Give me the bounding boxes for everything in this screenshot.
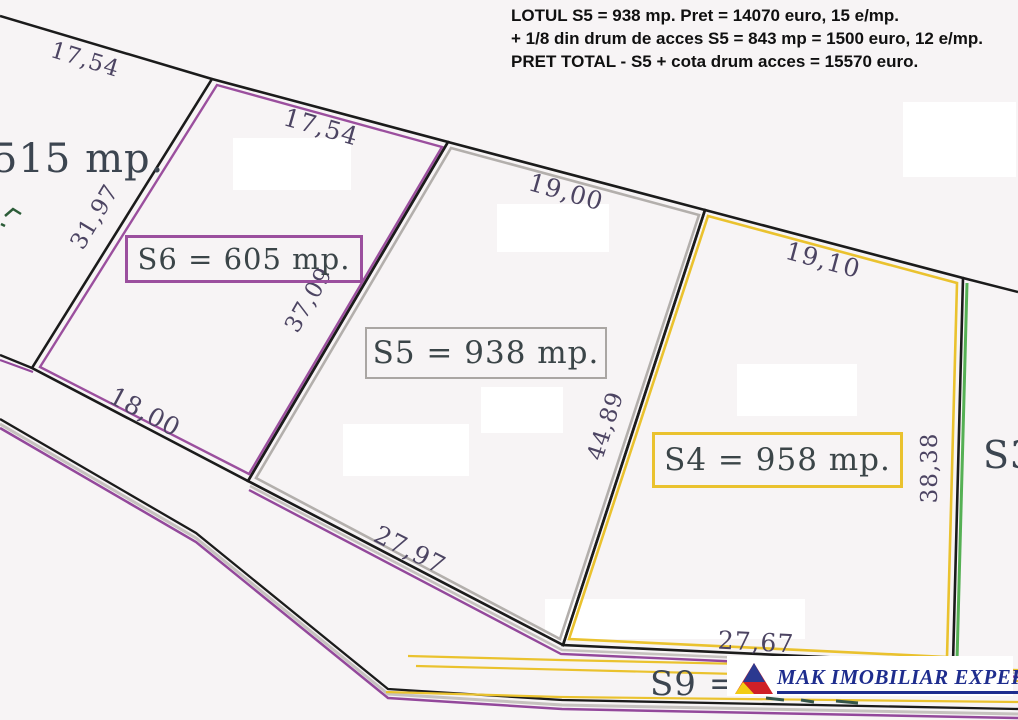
- agency-triangle-icon: [733, 662, 775, 695]
- road-near-gray: [250, 486, 1018, 673]
- margin-tick: [1, 209, 21, 226]
- plot-s4-label-box: S4 = 958 mp.: [652, 432, 903, 488]
- plot-s4-label: S4 = 958 mp.: [664, 442, 891, 478]
- plot-s5-label: S5 = 938 mp.: [373, 335, 600, 371]
- plot-s6-label: S6 = 605 mp.: [138, 242, 351, 276]
- agency-name: MAK IMOBILIAR EXPERT: [777, 665, 1018, 694]
- boundary-top-right-line: [963, 278, 1018, 292]
- annotation-line-1: LOTUL S5 = 938 mp. Pret = 14070 euro, 15…: [511, 4, 983, 27]
- plot-s5-outline: [248, 142, 705, 645]
- neighbor-plot-label: 515 mp.: [0, 136, 164, 182]
- plot-s5-label-box: S5 = 938 mp.: [365, 327, 607, 379]
- triangle-blue-part: [743, 663, 765, 682]
- plot-s6-label-box: S6 = 605 mp.: [125, 235, 363, 283]
- plot-s5-highlight: [256, 148, 699, 639]
- plot-map: 17,54 17,54 19,00 19,10 31,97 37,09 44,8…: [0, 0, 1018, 720]
- pricing-annotation: LOTUL S5 = 938 mp. Pret = 14070 euro, 15…: [511, 4, 983, 73]
- dim-label-38-38: 38,38: [917, 433, 943, 504]
- plot-s3-label: S3: [983, 433, 1018, 477]
- annotation-line-2: + 1/8 din drum de acces S5 = 843 mp = 15…: [511, 27, 983, 50]
- plot-s9-label: S9 =: [650, 664, 738, 704]
- annotation-line-3: PRET TOTAL - S5 + cota drum acces = 1557…: [511, 50, 983, 73]
- dim-label-27-67: 27,67: [717, 626, 795, 659]
- agency-logo-band: MAK IMOBILIAR EXPERT: [727, 656, 1013, 696]
